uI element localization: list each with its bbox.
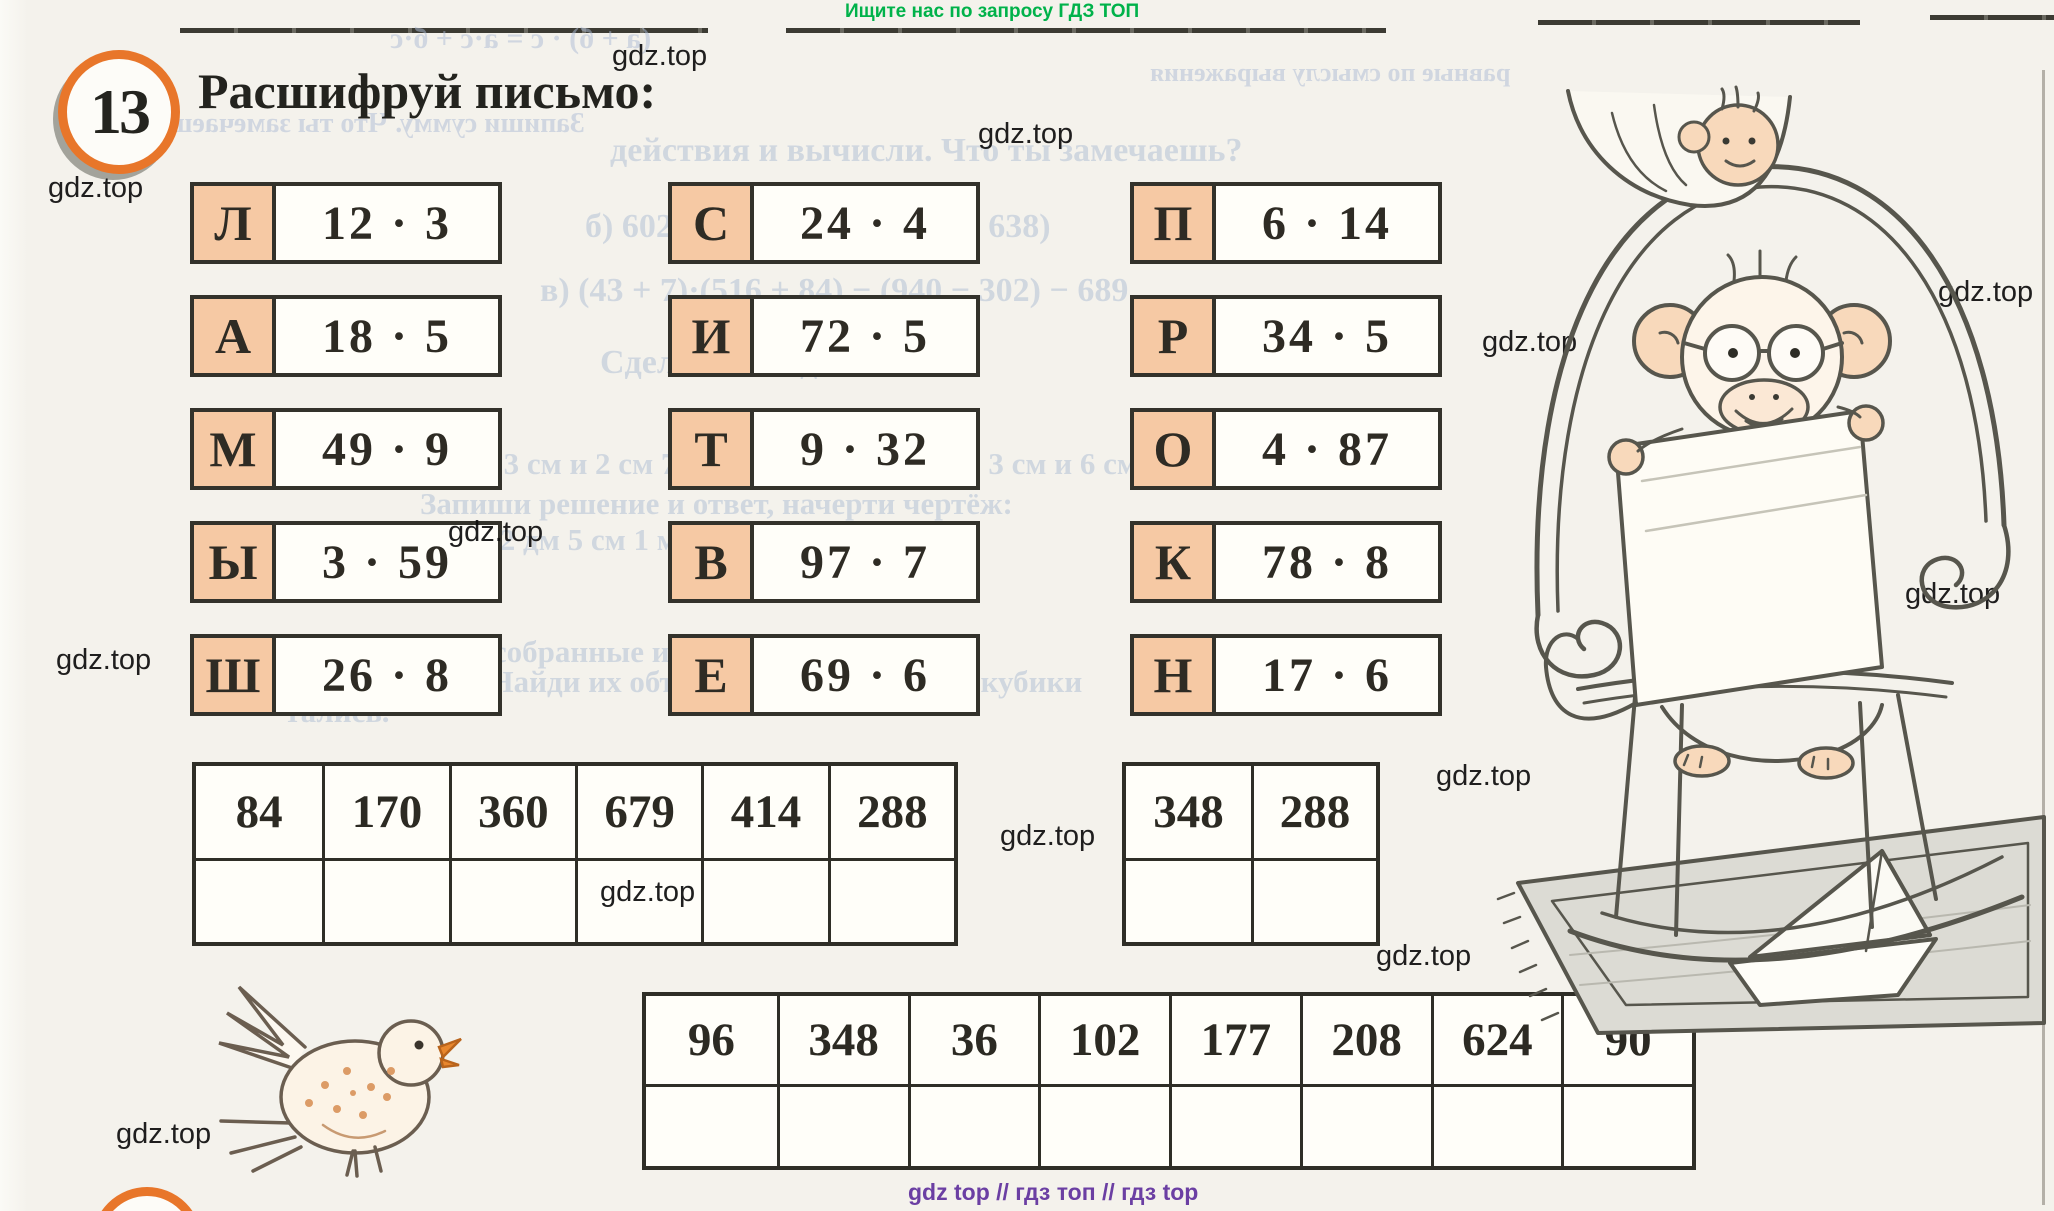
cipher-expression: 12 · 3 [276, 186, 498, 260]
answer-cell: 170 [322, 766, 448, 858]
top-rule-segment [786, 28, 1386, 33]
answer-cell-empty [322, 858, 448, 942]
answer-cell-empty [1038, 1084, 1169, 1166]
answer-cell: 360 [449, 766, 575, 858]
cipher-expression: 24 · 4 [754, 186, 976, 260]
cipher-box-Ш: Ш26 · 8 [190, 634, 502, 716]
answer-cell-empty [646, 1084, 777, 1166]
cipher-letter: Р [1134, 299, 1216, 373]
answer-cell: 288 [1251, 766, 1376, 858]
cipher-letter: Н [1134, 638, 1216, 712]
gdz-watermark: gdz.top [48, 172, 143, 205]
cipher-letter: И [672, 299, 754, 373]
answer-cell-empty [777, 1084, 908, 1166]
cipher-expression: 17 · 6 [1216, 638, 1438, 712]
cipher-box-О: О4 · 87 [1130, 408, 1442, 490]
answer-cell-empty [1431, 1084, 1562, 1166]
cipher-box-Р: Р34 · 5 [1130, 295, 1442, 377]
promo-header-text: Ищите нас по запросу ГДЗ ТОП [845, 1, 1139, 23]
cipher-box-И: И72 · 5 [668, 295, 980, 377]
cipher-box-В: В97 · 7 [668, 521, 980, 603]
cipher-box-А: А18 · 5 [190, 295, 502, 377]
cipher-box-Л: Л12 · 3 [190, 182, 502, 264]
cipher-box-М: М49 · 9 [190, 408, 502, 490]
answer-cell: 348 [1126, 766, 1251, 858]
gdz-watermark: gdz.top [612, 40, 707, 73]
answer-cell-empty [1126, 858, 1251, 942]
answer-cell: 177 [1169, 996, 1300, 1084]
cipher-letter: Т [672, 412, 754, 486]
answer-cell-empty [196, 858, 322, 942]
cipher-letter: П [1134, 186, 1216, 260]
task-number: 13 [90, 75, 148, 149]
gdz-watermark: gdz.top [116, 1118, 211, 1151]
answer-cell-empty [1300, 1084, 1431, 1166]
monkey-reading-illustration [1430, 55, 2054, 1065]
flying-bird-illustration [205, 975, 467, 1187]
cipher-box-Н: Н17 · 6 [1130, 634, 1442, 716]
answer-cell: 36 [908, 996, 1039, 1084]
cipher-box-С: С24 · 4 [668, 182, 980, 264]
cipher-letter: Ш [194, 638, 276, 712]
bleedthrough-text: действия и вычисли. Что ты замечаешь? [610, 132, 1243, 170]
answer-cell: 679 [575, 766, 701, 858]
cipher-box-Т: Т9 · 32 [668, 408, 980, 490]
gdz-watermark: gdz.top [56, 644, 151, 677]
cipher-letter: Ы [194, 525, 276, 599]
gdz-watermark: gdz.top [448, 516, 543, 549]
answer-cell-empty [1251, 858, 1376, 942]
next-task-badge-partial [92, 1187, 202, 1211]
task-title: Расшифруй письмо: [198, 62, 656, 120]
cipher-expression: 97 · 7 [754, 525, 976, 599]
answer-table-from: 348288 [1122, 762, 1380, 946]
cipher-letter: О [1134, 412, 1216, 486]
answer-cell: 102 [1038, 996, 1169, 1084]
cipher-letter: М [194, 412, 276, 486]
answer-cell-empty [908, 1084, 1039, 1166]
cipher-expression: 18 · 5 [276, 299, 498, 373]
answer-cell-empty [701, 858, 827, 942]
cipher-letter: Л [194, 186, 276, 260]
scan-left-margin [0, 0, 28, 1211]
answer-cell: 208 [1300, 996, 1431, 1084]
cipher-expression: 72 · 5 [754, 299, 976, 373]
cipher-box-П: П6 · 14 [1130, 182, 1442, 264]
cipher-box-Е: Е69 · 6 [668, 634, 980, 716]
scanned-textbook-page: Ищите нас по запросу ГДЗ ТОП действия и … [0, 0, 2054, 1211]
answer-cell-empty [1561, 1084, 1692, 1166]
cipher-expression: 69 · 6 [754, 638, 976, 712]
cipher-box-К: К78 · 8 [1130, 521, 1442, 603]
top-rule-segment [1930, 15, 2054, 20]
cipher-expression: 34 · 5 [1216, 299, 1438, 373]
answer-cell: 414 [701, 766, 827, 858]
cipher-letter: В [672, 525, 754, 599]
answer-cell-empty [1169, 1084, 1300, 1166]
cipher-expression: 4 · 87 [1216, 412, 1438, 486]
cipher-expression: 9 · 32 [754, 412, 976, 486]
gdz-watermark: gdz.top [1000, 820, 1095, 853]
cipher-letter: С [672, 186, 754, 260]
cipher-letter: К [1134, 525, 1216, 599]
task-number-badge: 13 [58, 50, 180, 174]
answer-cell: 288 [828, 766, 954, 858]
top-rule-segment [1538, 20, 1860, 25]
cipher-expression: 78 · 8 [1216, 525, 1438, 599]
gdz-watermark: gdz.top [978, 118, 1073, 151]
answer-table-greeting: 84170360679414288 [192, 762, 958, 946]
gdz-watermark: gdz.top [600, 876, 695, 909]
cipher-expression: 49 · 9 [276, 412, 498, 486]
answer-cell-empty [449, 858, 575, 942]
promo-footer-text: gdz top // гдз топ // гдз top [908, 1179, 1198, 1206]
cipher-letter: А [194, 299, 276, 373]
answer-cell: 348 [777, 996, 908, 1084]
cipher-letter: Е [672, 638, 754, 712]
answer-cell-empty [828, 858, 954, 942]
answer-cell: 96 [646, 996, 777, 1084]
answer-cell: 84 [196, 766, 322, 858]
cipher-expression: 6 · 14 [1216, 186, 1438, 260]
cipher-expression: 26 · 8 [276, 638, 498, 712]
